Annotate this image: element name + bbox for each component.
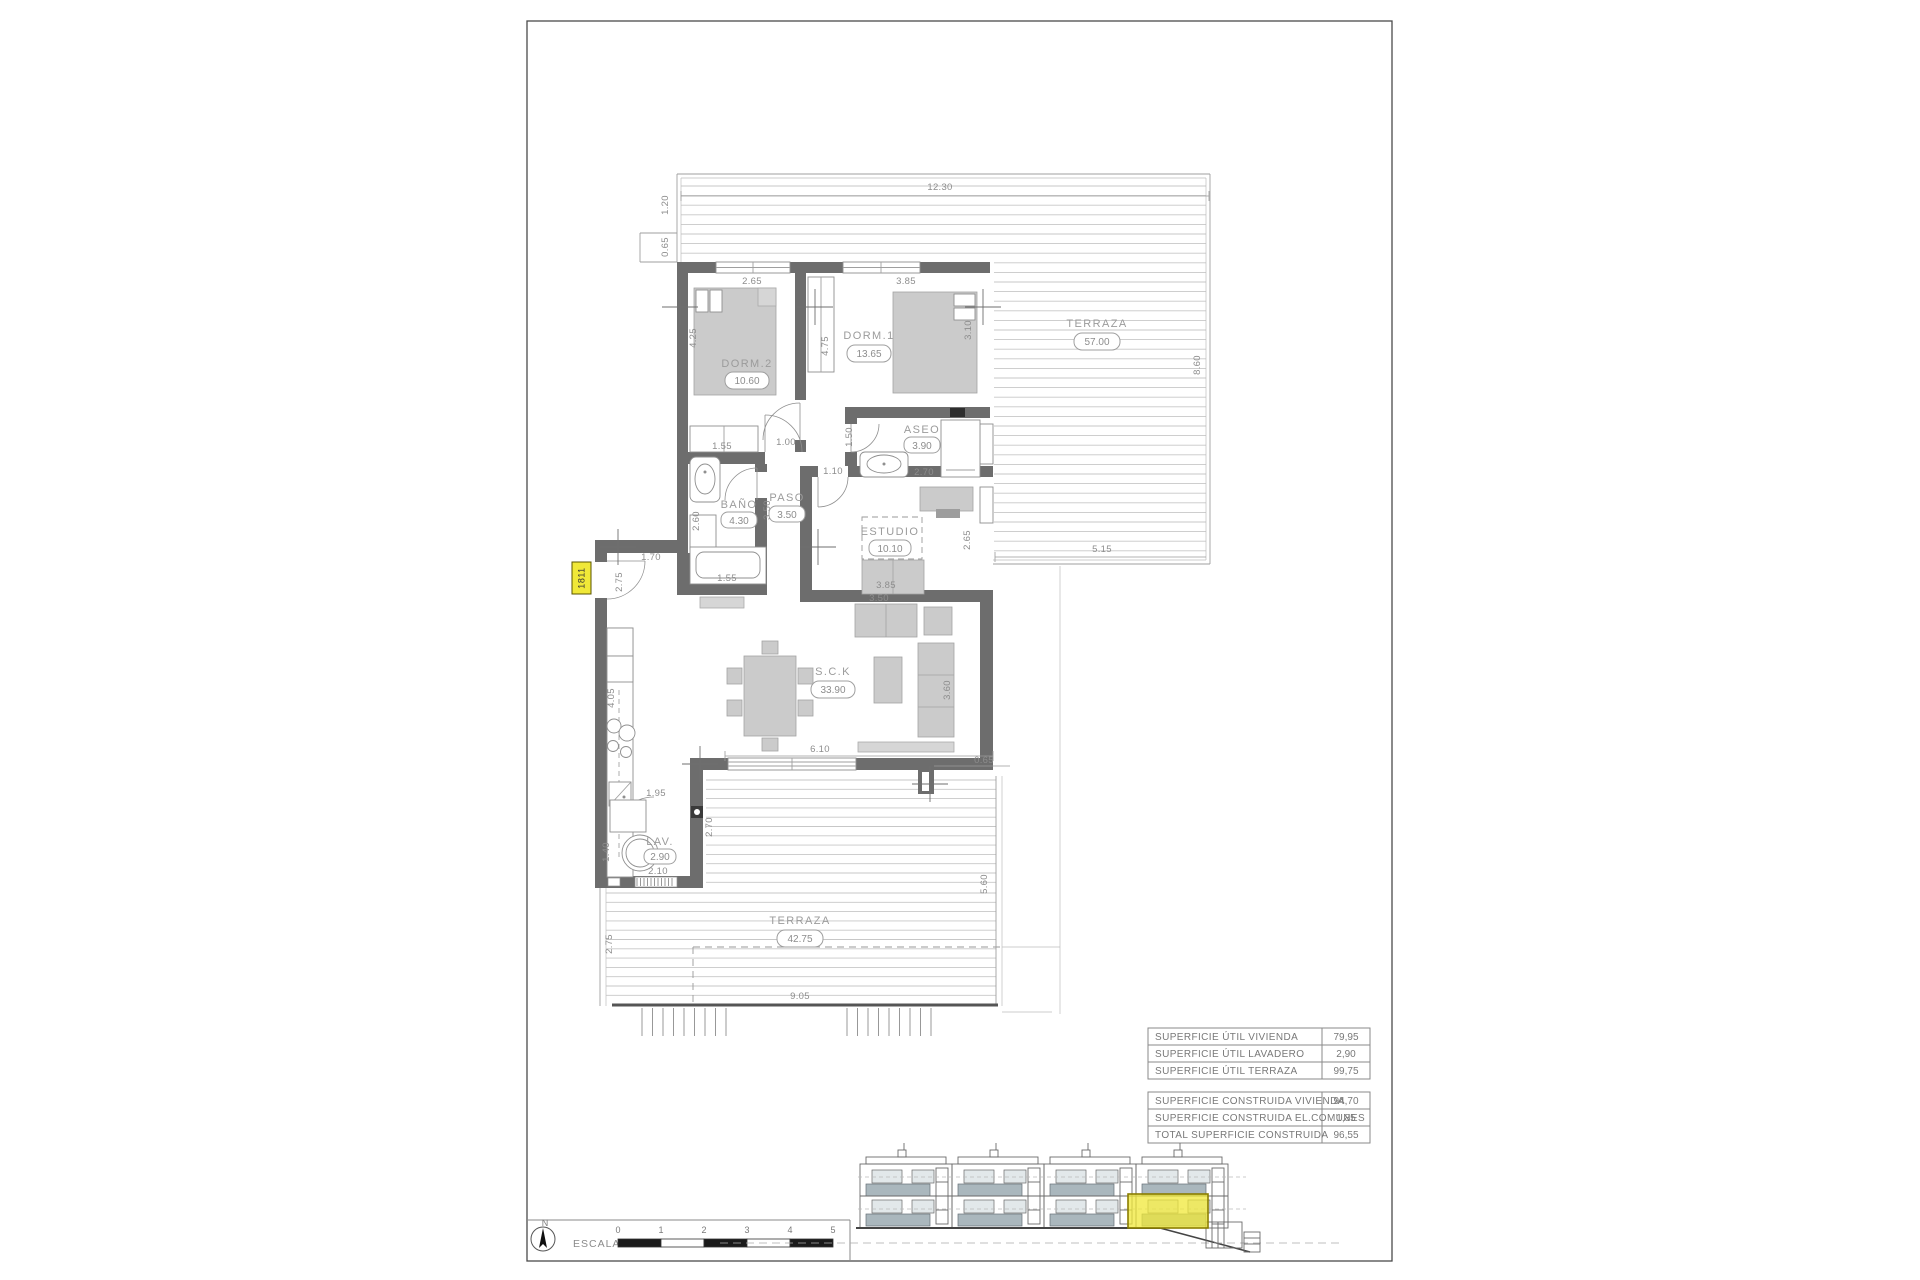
svg-text:5: 5 [830,1225,835,1235]
summary-table-built: SUPERFICIE CONSTRUIDA VIVIENDA 94,70 SUP… [1148,1092,1370,1143]
room-label-dorm2: DORM.2 10.60 [721,358,772,389]
svg-text:4.25: 4.25 [688,328,699,348]
svg-text:2.90: 2.90 [650,852,670,863]
svg-text:1: 1 [658,1225,663,1235]
svg-text:TERRAZA: TERRAZA [769,915,830,927]
svg-text:5.60: 5.60 [979,874,990,894]
svg-text:3.85: 3.85 [876,580,896,591]
svg-text:2.75: 2.75 [604,934,615,954]
svg-text:2.10: 2.10 [648,866,668,877]
svg-text:0.65: 0.65 [974,755,994,766]
svg-text:2.75: 2.75 [614,572,625,592]
svg-text:2,90: 2,90 [1336,1049,1356,1060]
svg-text:99,75: 99,75 [1333,1066,1358,1077]
svg-text:N: N [542,1218,549,1228]
window-aseo [980,424,993,464]
svg-text:2.65: 2.65 [962,530,973,550]
svg-text:1.50: 1.50 [844,427,855,447]
window-dorm1 [843,262,920,273]
svg-text:3.60: 3.60 [942,680,953,700]
room-label-bano: BAÑO 4.30 [721,498,758,528]
svg-text:2.70: 2.70 [914,467,934,478]
svg-text:1.95: 1.95 [646,788,666,799]
svg-text:8.60: 8.60 [1192,355,1203,375]
svg-text:10.60: 10.60 [734,376,759,387]
svg-text:PASO: PASO [769,492,804,504]
window-estudio [980,487,993,523]
svg-text:1.00: 1.00 [776,437,796,448]
room-label-sck: S.C.K 33.90 [811,666,855,698]
svg-text:SUPERFICIE CONSTRUIDA VIVIENDA: SUPERFICIE CONSTRUIDA VIVIENDA [1155,1096,1345,1107]
svg-text:2.60: 2.60 [691,511,702,531]
svg-text:1.55: 1.55 [717,573,737,584]
summary-table-util: SUPERFICIE ÚTIL VIVIENDA 79,95 SUPERFICI… [1148,1028,1370,1079]
svg-text:2.65: 2.65 [742,276,762,287]
svg-text:33.90: 33.90 [820,685,845,696]
svg-text:4: 4 [787,1225,792,1235]
svg-text:94,70: 94,70 [1333,1096,1358,1107]
svg-text:ASEO: ASEO [904,424,940,436]
svg-text:TOTAL SUPERFICIE CONSTRUIDA: TOTAL SUPERFICIE CONSTRUIDA [1155,1130,1328,1141]
svg-text:4.05: 4.05 [606,688,617,708]
room-label-paso: PASO 3.50 [769,492,805,522]
highlighted-unit [1128,1194,1208,1228]
room-label-aseo: ASEO 3.90 [904,424,940,453]
floor-plan-sheet: 12.30 1.20 0.65 2.65 3.85 4.25 4.75 3.10… [0,0,1920,1280]
svg-text:42.75: 42.75 [787,934,812,945]
svg-text:1.55: 1.55 [712,441,732,452]
svg-text:3.50: 3.50 [869,593,889,604]
svg-text:LAV.: LAV. [646,836,674,848]
svg-text:4.75: 4.75 [820,336,831,356]
svg-text:0: 0 [615,1225,620,1235]
svg-text:12.30: 12.30 [927,182,952,193]
room-label-lav: LAV. 2.90 [644,836,676,864]
svg-text:3.90: 3.90 [912,441,932,452]
svg-text:6.10: 6.10 [810,744,830,755]
svg-text:3.85: 3.85 [896,276,916,287]
unit-tag: 1811 [572,562,591,594]
svg-text:2: 2 [701,1225,706,1235]
svg-text:2.70: 2.70 [704,817,715,837]
svg-text:SUPERFICIE CONSTRUIDA EL.COMUN: SUPERFICIE CONSTRUIDA EL.COMUNES [1155,1113,1365,1124]
room-label-dorm1: DORM.1 13.65 [843,330,894,362]
svg-text:DORM.2: DORM.2 [721,358,772,370]
svg-text:1.40: 1.40 [601,842,612,862]
svg-text:1811: 1811 [577,567,587,588]
window-dorm2 [716,262,790,273]
svg-text:3: 3 [744,1225,749,1235]
svg-text:1.20: 1.20 [660,195,671,215]
svg-text:SUPERFICIE ÚTIL LAVADERO: SUPERFICIE ÚTIL LAVADERO [1155,1047,1304,1060]
svg-text:1.10: 1.10 [823,466,843,477]
svg-text:3.10: 3.10 [963,320,974,340]
svg-text:ESTUDIO: ESTUDIO [861,526,920,538]
svg-text:S.C.K: S.C.K [815,666,851,678]
drawing-canvas: 12.30 1.20 0.65 2.65 3.85 4.25 4.75 3.10… [0,0,1920,1280]
sliding-door [728,758,856,770]
svg-text:96,55: 96,55 [1333,1130,1358,1141]
svg-text:DORM.1: DORM.1 [843,330,894,342]
svg-text:5.15: 5.15 [1092,544,1112,555]
svg-text:SUPERFICIE ÚTIL VIVIENDA: SUPERFICIE ÚTIL VIVIENDA [1155,1030,1298,1043]
svg-text:TERRAZA: TERRAZA [1066,318,1127,330]
svg-text:1,85: 1,85 [1336,1113,1356,1124]
svg-text:1.70: 1.70 [641,552,661,563]
svg-text:13.65: 13.65 [856,349,881,360]
svg-text:9.05: 9.05 [790,991,810,1002]
svg-text:SUPERFICIE ÚTIL TERRAZA: SUPERFICIE ÚTIL TERRAZA [1155,1064,1298,1077]
svg-text:BAÑO: BAÑO [721,498,758,511]
svg-text:10.10: 10.10 [877,544,902,555]
svg-text:79,95: 79,95 [1333,1032,1358,1043]
svg-text:57.00: 57.00 [1084,337,1109,348]
svg-text:0.65: 0.65 [660,237,671,257]
svg-text:4.30: 4.30 [729,516,749,527]
svg-text:3.50: 3.50 [777,510,797,521]
